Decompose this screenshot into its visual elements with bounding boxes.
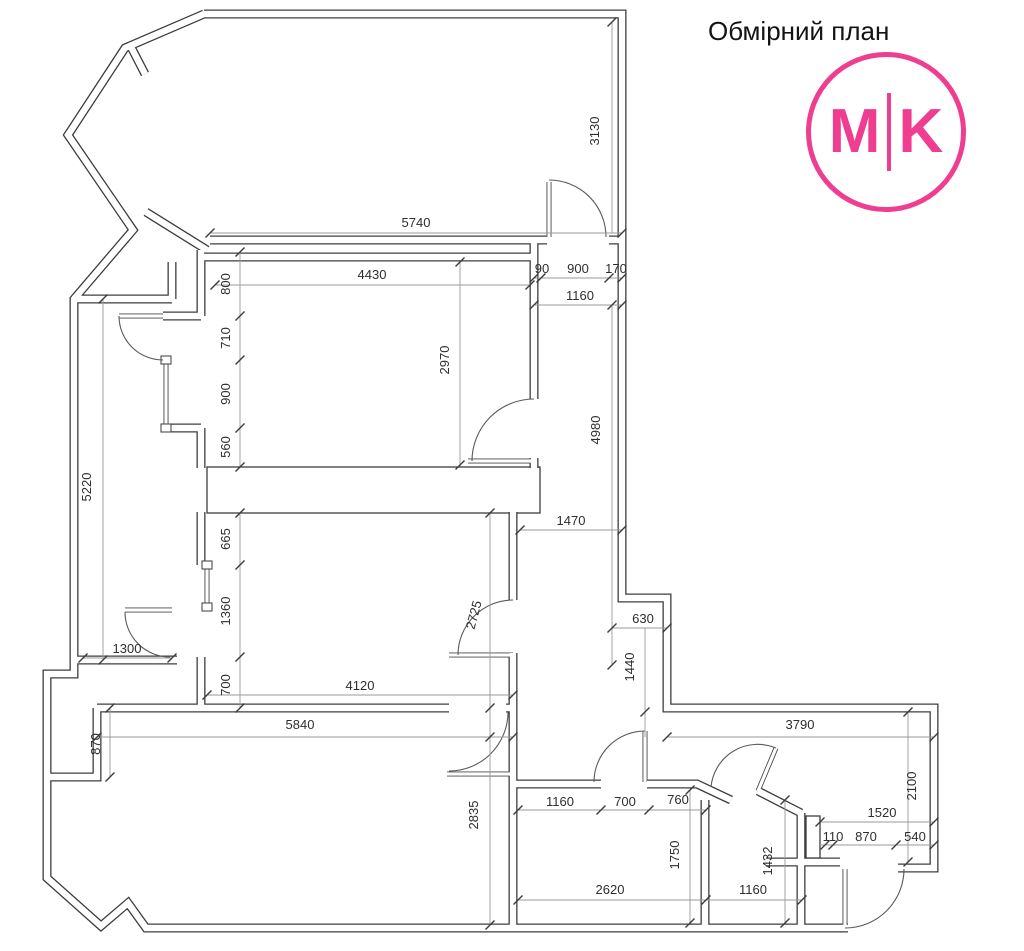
dim-1432: 1432 (760, 847, 775, 876)
door-arc-living (449, 712, 508, 771)
door-arc-room1-balcony (119, 316, 163, 360)
dim-1160-bath: 1160 (546, 794, 574, 809)
door-arc-room1-hall (472, 399, 534, 461)
dim-4430: 4430 (358, 267, 387, 282)
dim-3790: 3790 (786, 717, 815, 732)
dim-2725: 2725 (463, 599, 485, 631)
dim-900-door: 900 (567, 261, 589, 276)
dim-1300: 1300 (113, 641, 142, 656)
dim-90: 90 (535, 261, 549, 276)
dim-5740: 5740 (402, 215, 431, 230)
logo-divider (887, 93, 891, 171)
dim-700-left: 700 (218, 674, 233, 696)
dim-760: 760 (667, 792, 689, 807)
dim-4120: 4120 (346, 678, 375, 693)
dim-870-entry: 870 (855, 829, 877, 844)
dim-5840: 5840 (286, 717, 315, 732)
door-arc-top-room (549, 180, 606, 237)
dim-560: 560 (218, 436, 233, 458)
vent-shaft (806, 816, 820, 858)
dim-665: 665 (218, 528, 233, 550)
dim-2970: 2970 (437, 346, 452, 375)
dim-2835: 2835 (466, 801, 481, 830)
mk-logo: M K (806, 52, 966, 212)
dim-2620: 2620 (596, 882, 625, 897)
dim-170: 170 (605, 261, 627, 276)
window-markers (161, 356, 212, 611)
dim-800: 800 (218, 273, 233, 295)
dim-1360: 1360 (218, 597, 233, 626)
dim-900-window: 900 (218, 383, 233, 405)
logo-letter-m: M (829, 101, 881, 163)
dim-4980: 4980 (588, 416, 603, 445)
dim-630: 630 (632, 611, 654, 626)
dim-1520: 1520 (868, 805, 897, 820)
dim-700-bath: 700 (614, 794, 636, 809)
dim-1160-wc: 1160 (739, 882, 767, 897)
door-arc-entrance (845, 869, 904, 928)
floor-plan-page: 5740 3130 4430 90 900 170 1160 800 710 9… (0, 0, 1024, 951)
dim-1470: 1470 (557, 513, 586, 528)
door-arc-bathroom (594, 731, 645, 782)
page-title: Обмірний план (708, 16, 1008, 47)
dim-870-left: 870 (88, 733, 103, 755)
dim-5220: 5220 (79, 473, 94, 502)
dim-2100: 2100 (904, 772, 919, 801)
wall-band (207, 467, 540, 513)
dim-1440: 1440 (622, 653, 637, 682)
logo-letter-k: K (898, 101, 943, 163)
dim-1750: 1750 (667, 841, 682, 870)
dim-110: 110 (823, 829, 844, 844)
dim-3130: 3130 (587, 117, 602, 146)
dim-710: 710 (218, 327, 233, 349)
dim-540: 540 (904, 829, 926, 844)
dim-1160-hall: 1160 (566, 288, 594, 303)
